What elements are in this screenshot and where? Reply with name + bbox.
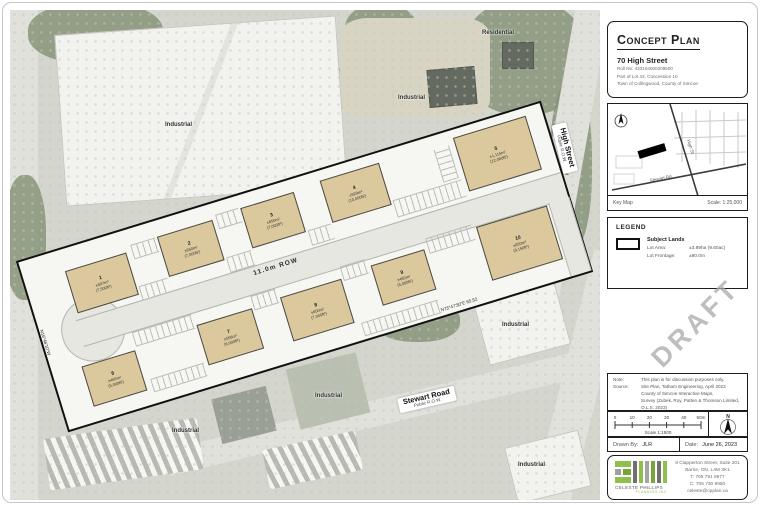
building-3: 3 ±650m² (7,000ft²) (240, 192, 306, 249)
roll-number: Roll No: 433104000209500 (617, 66, 738, 73)
scale-tick: 30 (664, 415, 670, 420)
date-label: Date: (685, 442, 698, 448)
logo-bar (657, 461, 661, 483)
north-arrow: N (717, 412, 739, 436)
source-line: Site Plan, Tatham Engineering, April 202… (641, 384, 739, 391)
source-line: County of Simcoe Interactive Maps, (641, 391, 739, 398)
zone-label-residential: Residential (482, 30, 514, 36)
date-value: June 26, 2023 (702, 442, 737, 448)
legend-heading: LEGEND (616, 224, 739, 231)
parking-row (434, 145, 459, 182)
firm-logo: CELESTE PHILLIPS PLANNING INC (615, 461, 667, 494)
firm-address-line: Barrie, ON, L4M 3K1 (675, 467, 740, 474)
building-9: 9 ±465m² (5,000ft²) (371, 249, 437, 306)
drawn-by-label: Drawn By: (613, 442, 638, 448)
title-block: Concept Plan 70 High Street Roll No: 433… (607, 21, 748, 98)
logo-bar (639, 461, 643, 483)
scale-text: Scale 1:1500 (645, 430, 672, 435)
site-address: 70 High Street (617, 56, 738, 65)
key-map-high-st-label: High St (686, 139, 695, 155)
notes-box: Note: Source: This plan is for discussio… (607, 373, 748, 411)
logo-bar (633, 461, 637, 483)
scale-bar: 0 10 20 30 40 50m Scale 1:1500 (610, 412, 706, 436)
firm-sub-name: PLANNING INC (615, 490, 667, 494)
legal-description: Part of Lot 43, Concession 10 (617, 74, 738, 81)
building-7: 7 ±558m² (6,000ft²) (196, 308, 264, 365)
note-text: This plan is for discussion purposes onl… (641, 377, 739, 384)
firm-block: CELESTE PHILLIPS PLANNING INC 8 Clappert… (607, 455, 748, 500)
logo-bar (651, 461, 655, 483)
subject-lands-swatch (616, 238, 640, 250)
firm-address-line: 8 Clapperton Street, Suite 201 (675, 460, 740, 467)
drawing-sheet: Industrial Industrial Residential Indust… (2, 2, 758, 503)
parking-row (215, 208, 242, 229)
source-line: Survey (Zubek, Roy, Patten & Thomson Lim… (641, 398, 739, 405)
firm-cell: C: 705 730 9850 (675, 481, 740, 488)
lot-frontage-label: Lot Frontage: (647, 253, 689, 261)
building-5: 5 ±1,115m² (12,000ft²) (453, 116, 542, 192)
scale-tick: 10 (630, 415, 636, 420)
key-map-stewart-rd-label: Stewart Rd (649, 174, 672, 183)
house (502, 42, 534, 69)
scale-bar-box: 0 10 20 30 40 50m Scale 1:1500 N (607, 411, 748, 437)
key-map-scale: Scale: 1:25,000 (707, 200, 742, 206)
logo-bar (615, 477, 631, 483)
building-2: 2 ±650m² (7,000ft²) (157, 220, 225, 277)
zone-label-industrial: Industrial (518, 462, 545, 468)
zone-label-industrial: Industrial (502, 322, 529, 328)
scale-tick: 40 (681, 415, 687, 420)
zone-label-industrial: Industrial (165, 122, 192, 128)
subject-lands-label: Subject Lands (647, 237, 725, 243)
lot-area-value: ±3.89ha (9.60ac) (689, 245, 725, 253)
drawn-by-value: JLR (642, 442, 652, 448)
firm-phone: T: 705 791 8977 (675, 474, 740, 481)
key-map-strip: Key Map Scale: 1:25,000 (608, 195, 747, 210)
scale-tick: 50m (697, 415, 706, 420)
note-label: Note: (613, 377, 637, 384)
lot-area-label: Lot Area: (647, 245, 689, 253)
building-8: 8 ±650m² (7,000ft²) (280, 279, 355, 342)
building-4: 4 ±929m² (10,000ft²) (320, 163, 392, 223)
logo-bar (663, 461, 667, 483)
zone-label-industrial: Industrial (398, 95, 425, 101)
parking-row (150, 363, 208, 393)
firm-email: celeste@cpplan.ca (675, 488, 740, 495)
north-label: N (726, 414, 730, 420)
key-map-subject-lands (637, 143, 666, 159)
zone-label-industrial: Industrial (315, 393, 342, 399)
logo-square (615, 469, 621, 475)
key-map-north-arrow (615, 113, 627, 127)
logo-bar (615, 461, 631, 467)
parking-row (130, 237, 159, 259)
municipality: Town of Collingwood, County of Simcoe (617, 81, 738, 88)
dark-building (426, 66, 477, 108)
key-map: High St Stewart Rd (608, 104, 746, 196)
scale-tick: 0 (614, 415, 617, 420)
key-map-box: High St Stewart Rd Key Map Scale: 1:25,0… (607, 103, 748, 211)
lot-frontage-value: ±80.0m (689, 253, 705, 261)
source-label: Source: (613, 384, 637, 391)
sheet-title: Concept Plan (617, 33, 700, 50)
logo-bar (623, 469, 631, 475)
scale-tick: 20 (647, 415, 653, 420)
key-map-label: Key Map (613, 200, 633, 206)
drawn-by-row: Drawn By: JLR Date: June 26, 2023 (607, 437, 748, 452)
zone-label-industrial: Industrial (172, 428, 199, 434)
logo-bar (645, 461, 649, 483)
